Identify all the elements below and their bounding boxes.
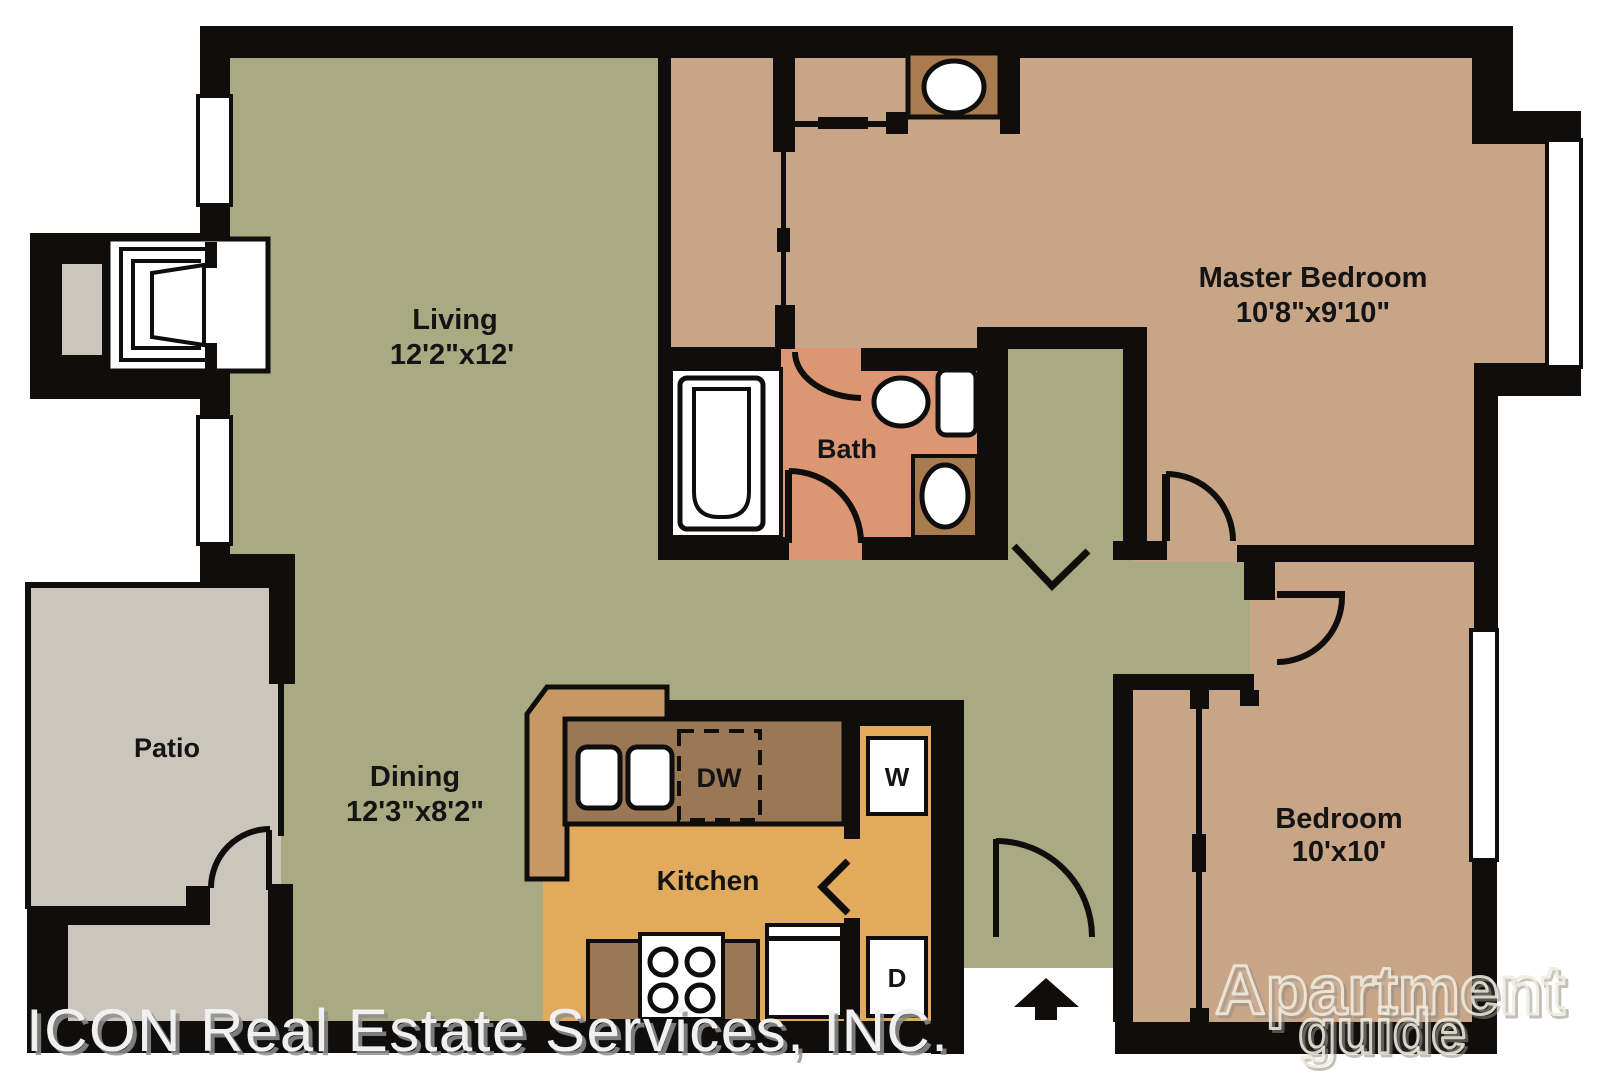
svg-text:Kitchen: Kitchen xyxy=(657,865,760,896)
svg-text:D: D xyxy=(888,963,907,993)
svg-text:Living: Living xyxy=(412,304,497,336)
svg-text:10'8"x9'10": 10'8"x9'10" xyxy=(1236,297,1390,329)
svg-text:12'2"x12': 12'2"x12' xyxy=(390,339,514,371)
svg-text:10'x10': 10'x10' xyxy=(1292,836,1386,868)
svg-text:ICON Real Estate Services, INC: ICON Real Estate Services, INC. xyxy=(26,997,949,1064)
svg-text:Bedroom: Bedroom xyxy=(1275,803,1402,835)
svg-text:Bath: Bath xyxy=(817,434,877,464)
svg-text:Dining: Dining xyxy=(370,761,460,793)
svg-text:Patio: Patio xyxy=(134,733,200,763)
svg-text:guide: guide xyxy=(1298,997,1466,1067)
svg-text:W: W xyxy=(885,762,910,792)
svg-text:DW: DW xyxy=(697,763,742,793)
svg-text:Master Bedroom: Master Bedroom xyxy=(1199,262,1428,294)
svg-text:12'3"x8'2": 12'3"x8'2" xyxy=(346,796,484,828)
